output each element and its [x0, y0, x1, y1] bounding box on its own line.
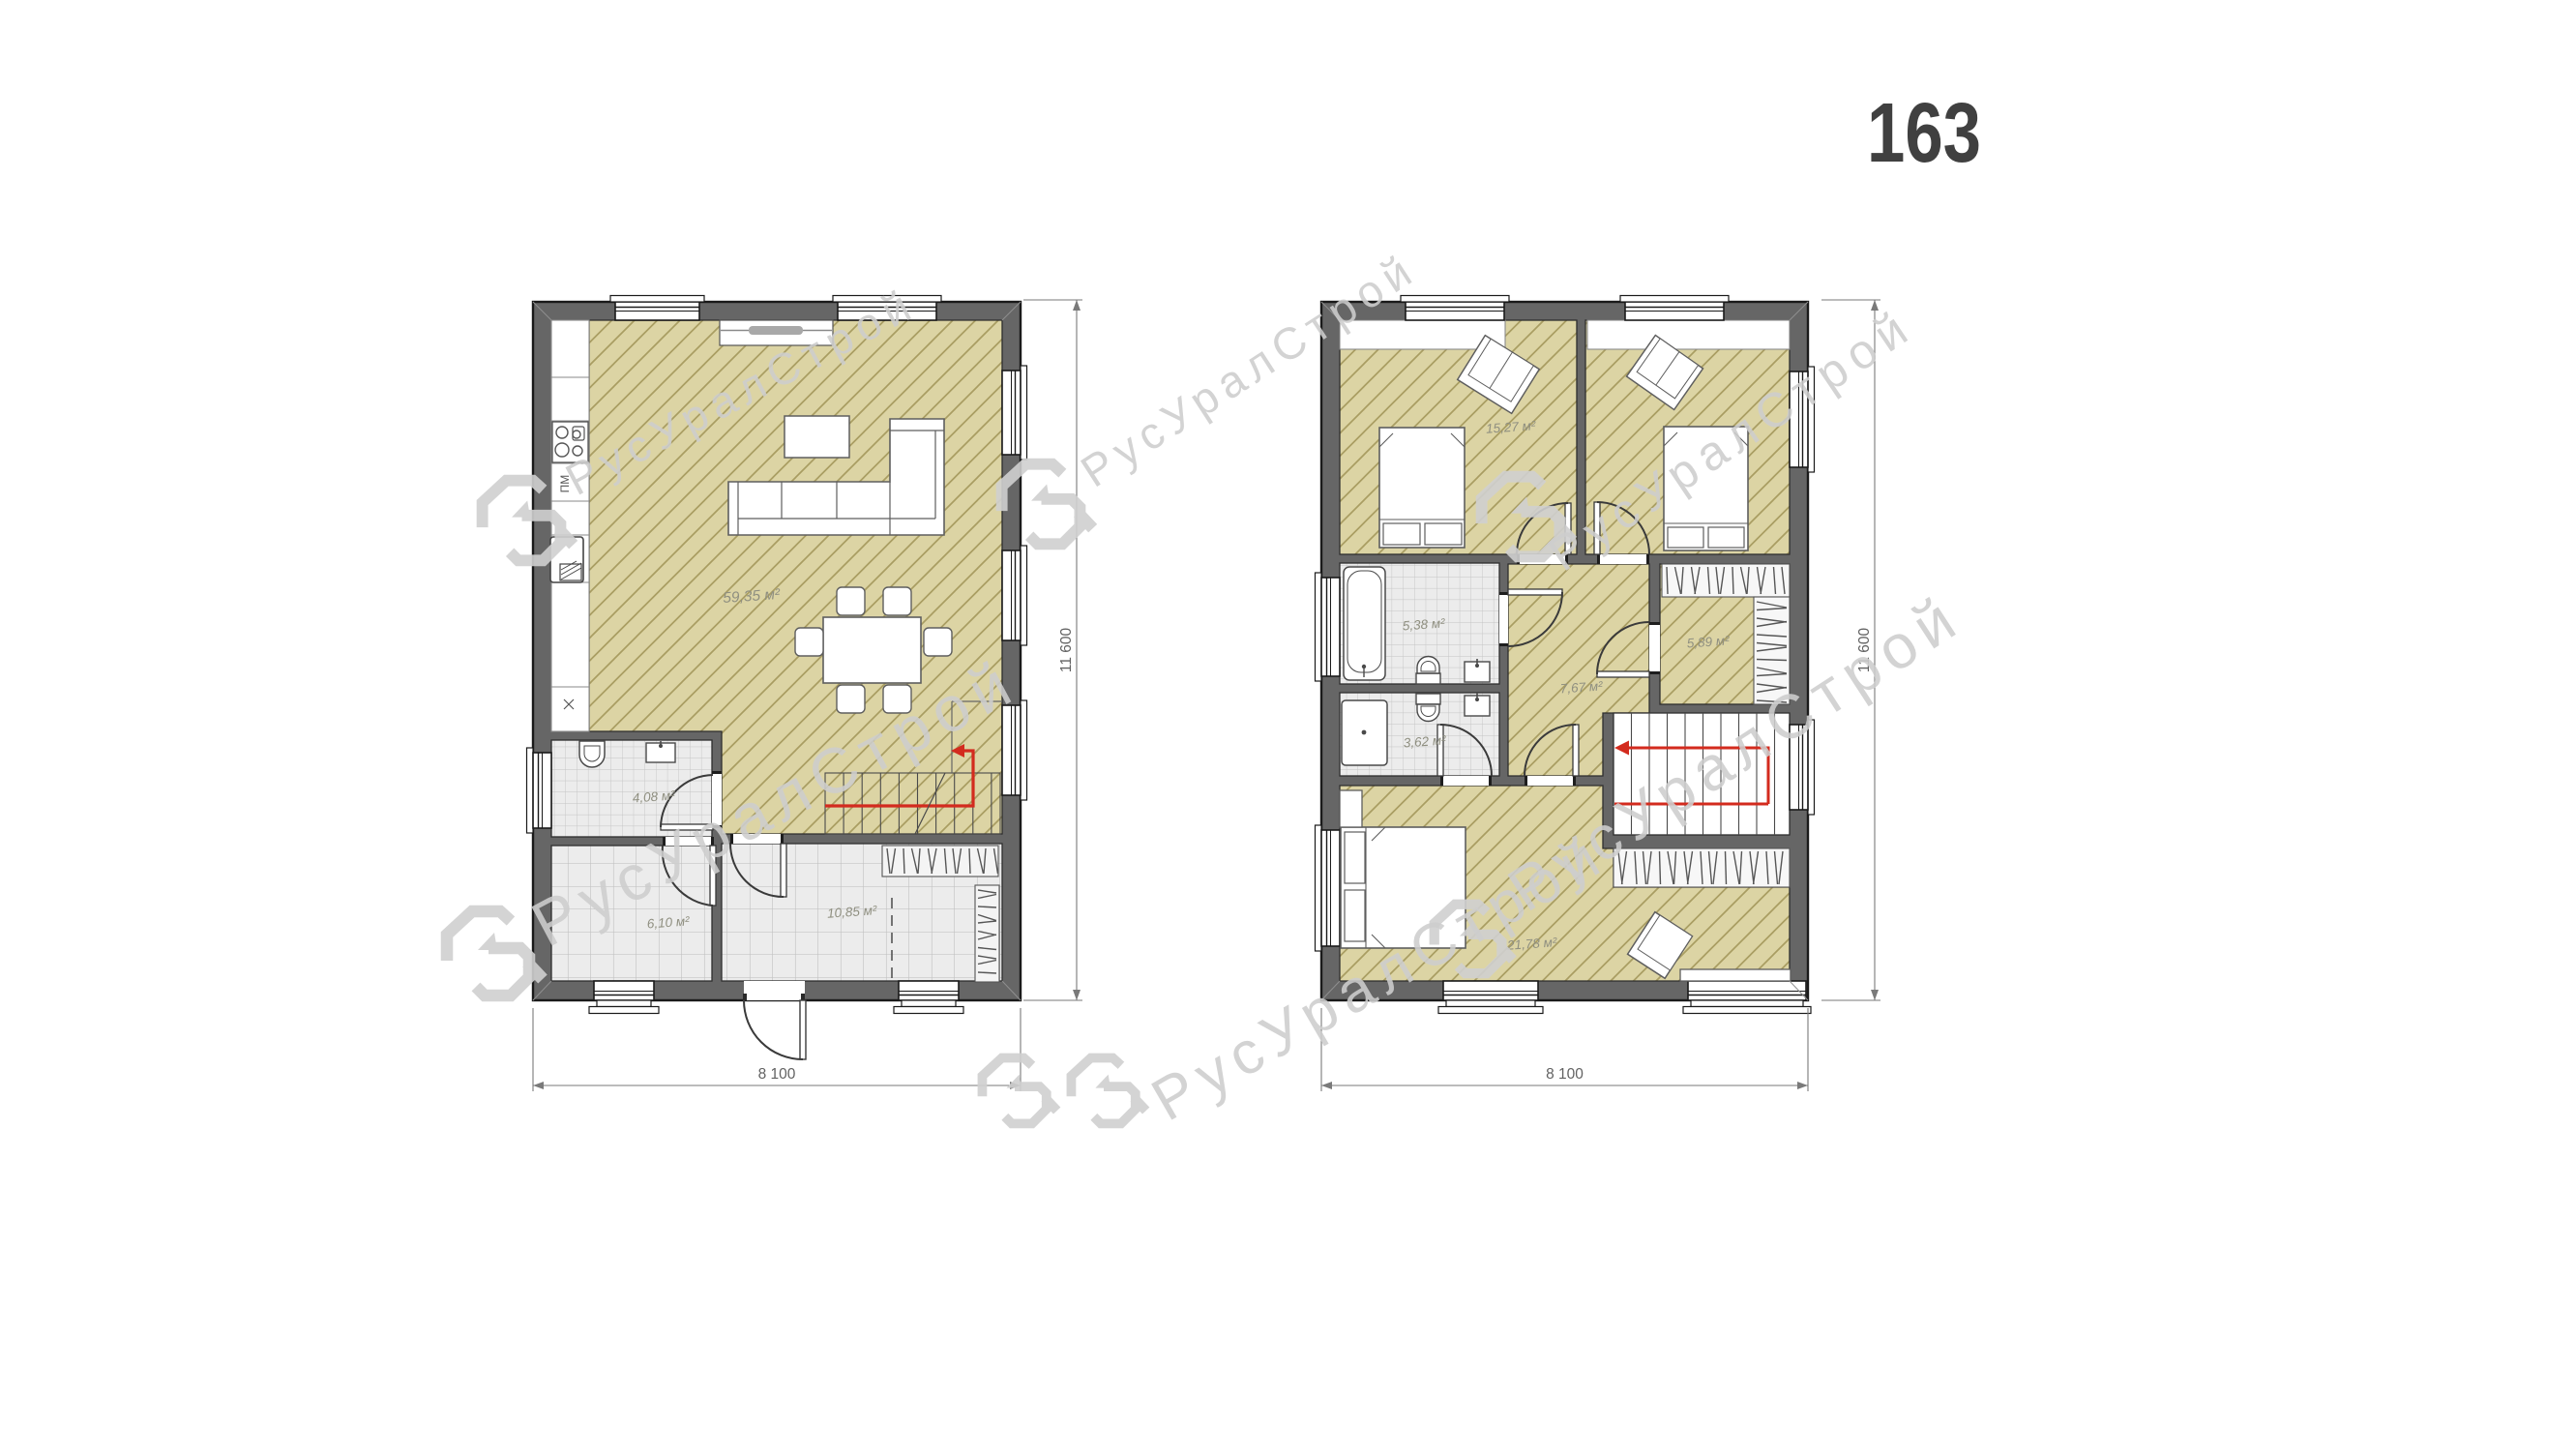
svg-text:7,67 м²: 7,67 м²: [1559, 678, 1603, 696]
svg-text:6,10 м²: 6,10 м²: [646, 913, 690, 931]
svg-text:5,89 м²: 5,89 м²: [1686, 633, 1730, 650]
svg-text:11 600: 11 600: [1058, 627, 1075, 672]
svg-text:4,08 м²: 4,08 м²: [632, 787, 675, 805]
svg-text:3,62 м²: 3,62 м²: [1403, 732, 1446, 750]
svg-text:5,38 м²: 5,38 м²: [1402, 615, 1445, 633]
svg-text:163: 163: [1867, 86, 1981, 180]
svg-text:8 100: 8 100: [758, 1066, 796, 1083]
svg-text:8 100: 8 100: [1546, 1066, 1584, 1083]
